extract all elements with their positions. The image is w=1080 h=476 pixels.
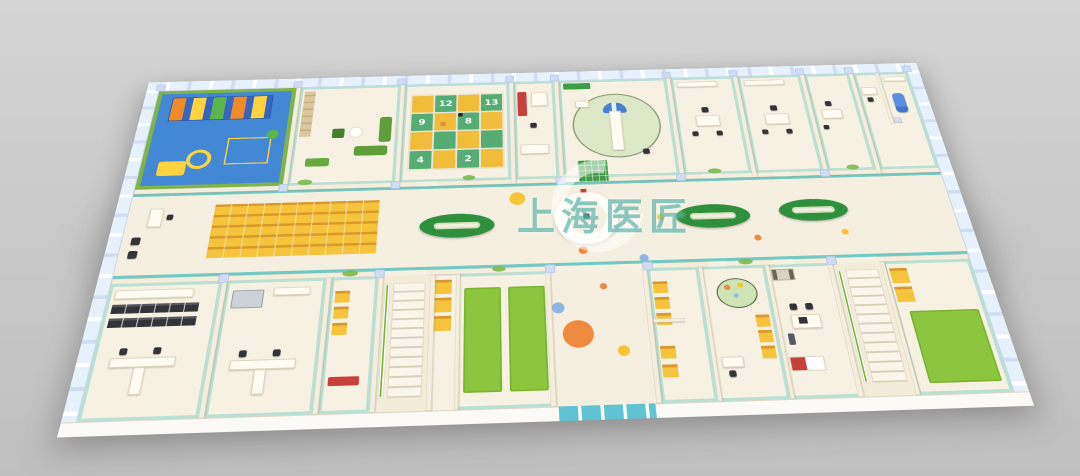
office-chair [805,303,814,310]
green-cabinet [563,83,590,90]
floor-dot-orange [600,283,608,289]
consult-desk [695,115,721,126]
game-door-gap [416,181,438,186]
hopscotch-grid: 12 13 9 8 4 2 [407,93,505,171]
rehab-mat-room [454,271,555,409]
floor-dot-blue [552,302,565,313]
tile-number: 13 [484,98,498,107]
building-floorplan: 12 13 9 8 4 2 [57,63,1034,438]
wall-pillar [661,72,671,79]
wall-stub [653,318,685,323]
yellow-chair-stack [331,291,351,336]
equipment-cart [893,117,902,123]
floor-dot-yellow [841,229,849,235]
staircase [387,282,426,398]
playground-room [135,88,297,190]
t-desk-stem [250,369,266,395]
wall-pillar [794,68,804,75]
office-chair [867,97,874,102]
main-entrance-doors [559,403,657,421]
doctor-chair [701,107,709,112]
number-game-room: 12 13 9 8 4 2 [399,82,510,182]
office-chair [153,347,162,354]
tile-number: 9 [418,118,426,127]
wall-pillar [843,67,854,74]
reception-sign [580,189,586,193]
toy-yellow [737,282,744,287]
play-beanbag [266,130,280,140]
treatment-chair-blue [891,93,909,112]
back-counter [743,79,784,85]
doctor-chair [824,101,832,106]
entrance-lobby [549,269,656,407]
wall-pillar [676,173,687,181]
yellow-mats-column [433,280,453,332]
wall-pillar [728,70,738,77]
consult1-door-gap [702,174,720,179]
wall-pillar [819,169,830,177]
play-mat-yellow [156,161,187,176]
game-tile [412,96,434,113]
game-tile [434,131,456,149]
tile-number: 8 [465,117,472,126]
counter [882,76,906,81]
game-tile [457,131,479,149]
yellow-chair-stack [660,346,680,378]
wall-pillar [545,264,556,273]
exam-device [798,317,808,324]
t-desk-stem [127,367,145,395]
wall-pillar [901,66,912,73]
consult-desk [764,113,790,124]
play-structure [168,95,274,121]
play-frame [223,137,271,165]
supply-box [531,92,548,106]
wall-pillar [293,81,303,88]
clinic-floorplan-render: 12 13 9 8 4 2 [0,0,1080,476]
small-treatment-room [513,81,559,179]
office-equipment [230,290,265,309]
workstation-desk [860,87,877,95]
visitor-chair [786,129,793,134]
wall-pillar [278,184,289,192]
visitor-chair [716,131,723,136]
tile-number: 2 [464,154,471,163]
red-bench [327,376,359,386]
green-cube-seat [332,129,345,139]
office-chair [238,350,247,357]
visitor-chair [692,131,699,136]
green-grid-rug [577,160,608,182]
play-ring [184,149,213,169]
game-tile-12: 12 [435,95,457,112]
counter [273,286,311,295]
office-chair [119,348,128,355]
consult-desk [821,109,844,119]
back-counter [676,81,717,87]
green-mat [463,287,502,393]
visitor-chair [823,125,830,129]
receptionist-chair [583,213,590,218]
green-sofa-2 [378,117,392,142]
storage-bins [107,302,200,328]
green-sofa [353,145,387,155]
bookshelf [299,91,316,136]
wall-pillar [505,76,514,83]
red-cabinet [517,92,527,116]
console-desk [575,101,589,108]
game-tile [481,130,503,148]
toy-orange [724,285,731,291]
green-bench [304,158,329,167]
game-tile-9: 9 [411,114,433,131]
consult2-door-gap [774,172,792,177]
wall-pillar [642,261,653,270]
cabinet-row [114,288,195,299]
office-chair [272,349,281,356]
game-tile [481,149,503,167]
game-tile [481,112,502,129]
game-tile [458,95,479,112]
stairwell-left [375,275,431,412]
game-tile [410,132,432,150]
game-tile [433,150,455,168]
wall-pillar [550,75,559,82]
planter-pill [434,222,481,230]
wall-pillar [397,78,406,85]
floor-dot-orange [754,235,762,241]
wall-pillar [374,269,385,278]
waiting-chairs-grid [206,200,380,258]
imaging-room [558,78,679,177]
green-mat [508,286,549,392]
doctor-chair [770,105,778,110]
standing-device [788,333,797,345]
lounge-room [287,85,400,185]
exam-table [521,144,550,154]
green-mat-large [909,309,1002,383]
round-table [348,127,363,138]
office-chair [530,123,537,128]
tile-number: 12 [439,99,453,108]
game-tile-2: 2 [457,149,479,167]
floor-dot-yellow [657,214,666,221]
office-chair [729,370,737,377]
office-chair [789,303,798,310]
wall-pillar [156,85,167,92]
toy-blue [733,293,738,297]
game-tile-4: 4 [409,151,432,169]
wall-pillar [555,176,565,184]
small-desk [721,356,745,367]
visitor-chair [762,129,769,134]
tile-number: 4 [416,155,424,165]
planter-pill [689,212,736,220]
wall-pillar [825,256,837,265]
floor-dot-orange-large [562,320,595,348]
planter-pill [791,206,835,214]
floor-dot-yellow [618,345,631,356]
office-chair [643,149,650,154]
wall-pillar [218,274,230,283]
game-tile-13: 13 [481,94,502,111]
wall-pillar [390,181,400,189]
exam-bed [789,356,827,372]
wall-ac-unit [771,269,796,281]
